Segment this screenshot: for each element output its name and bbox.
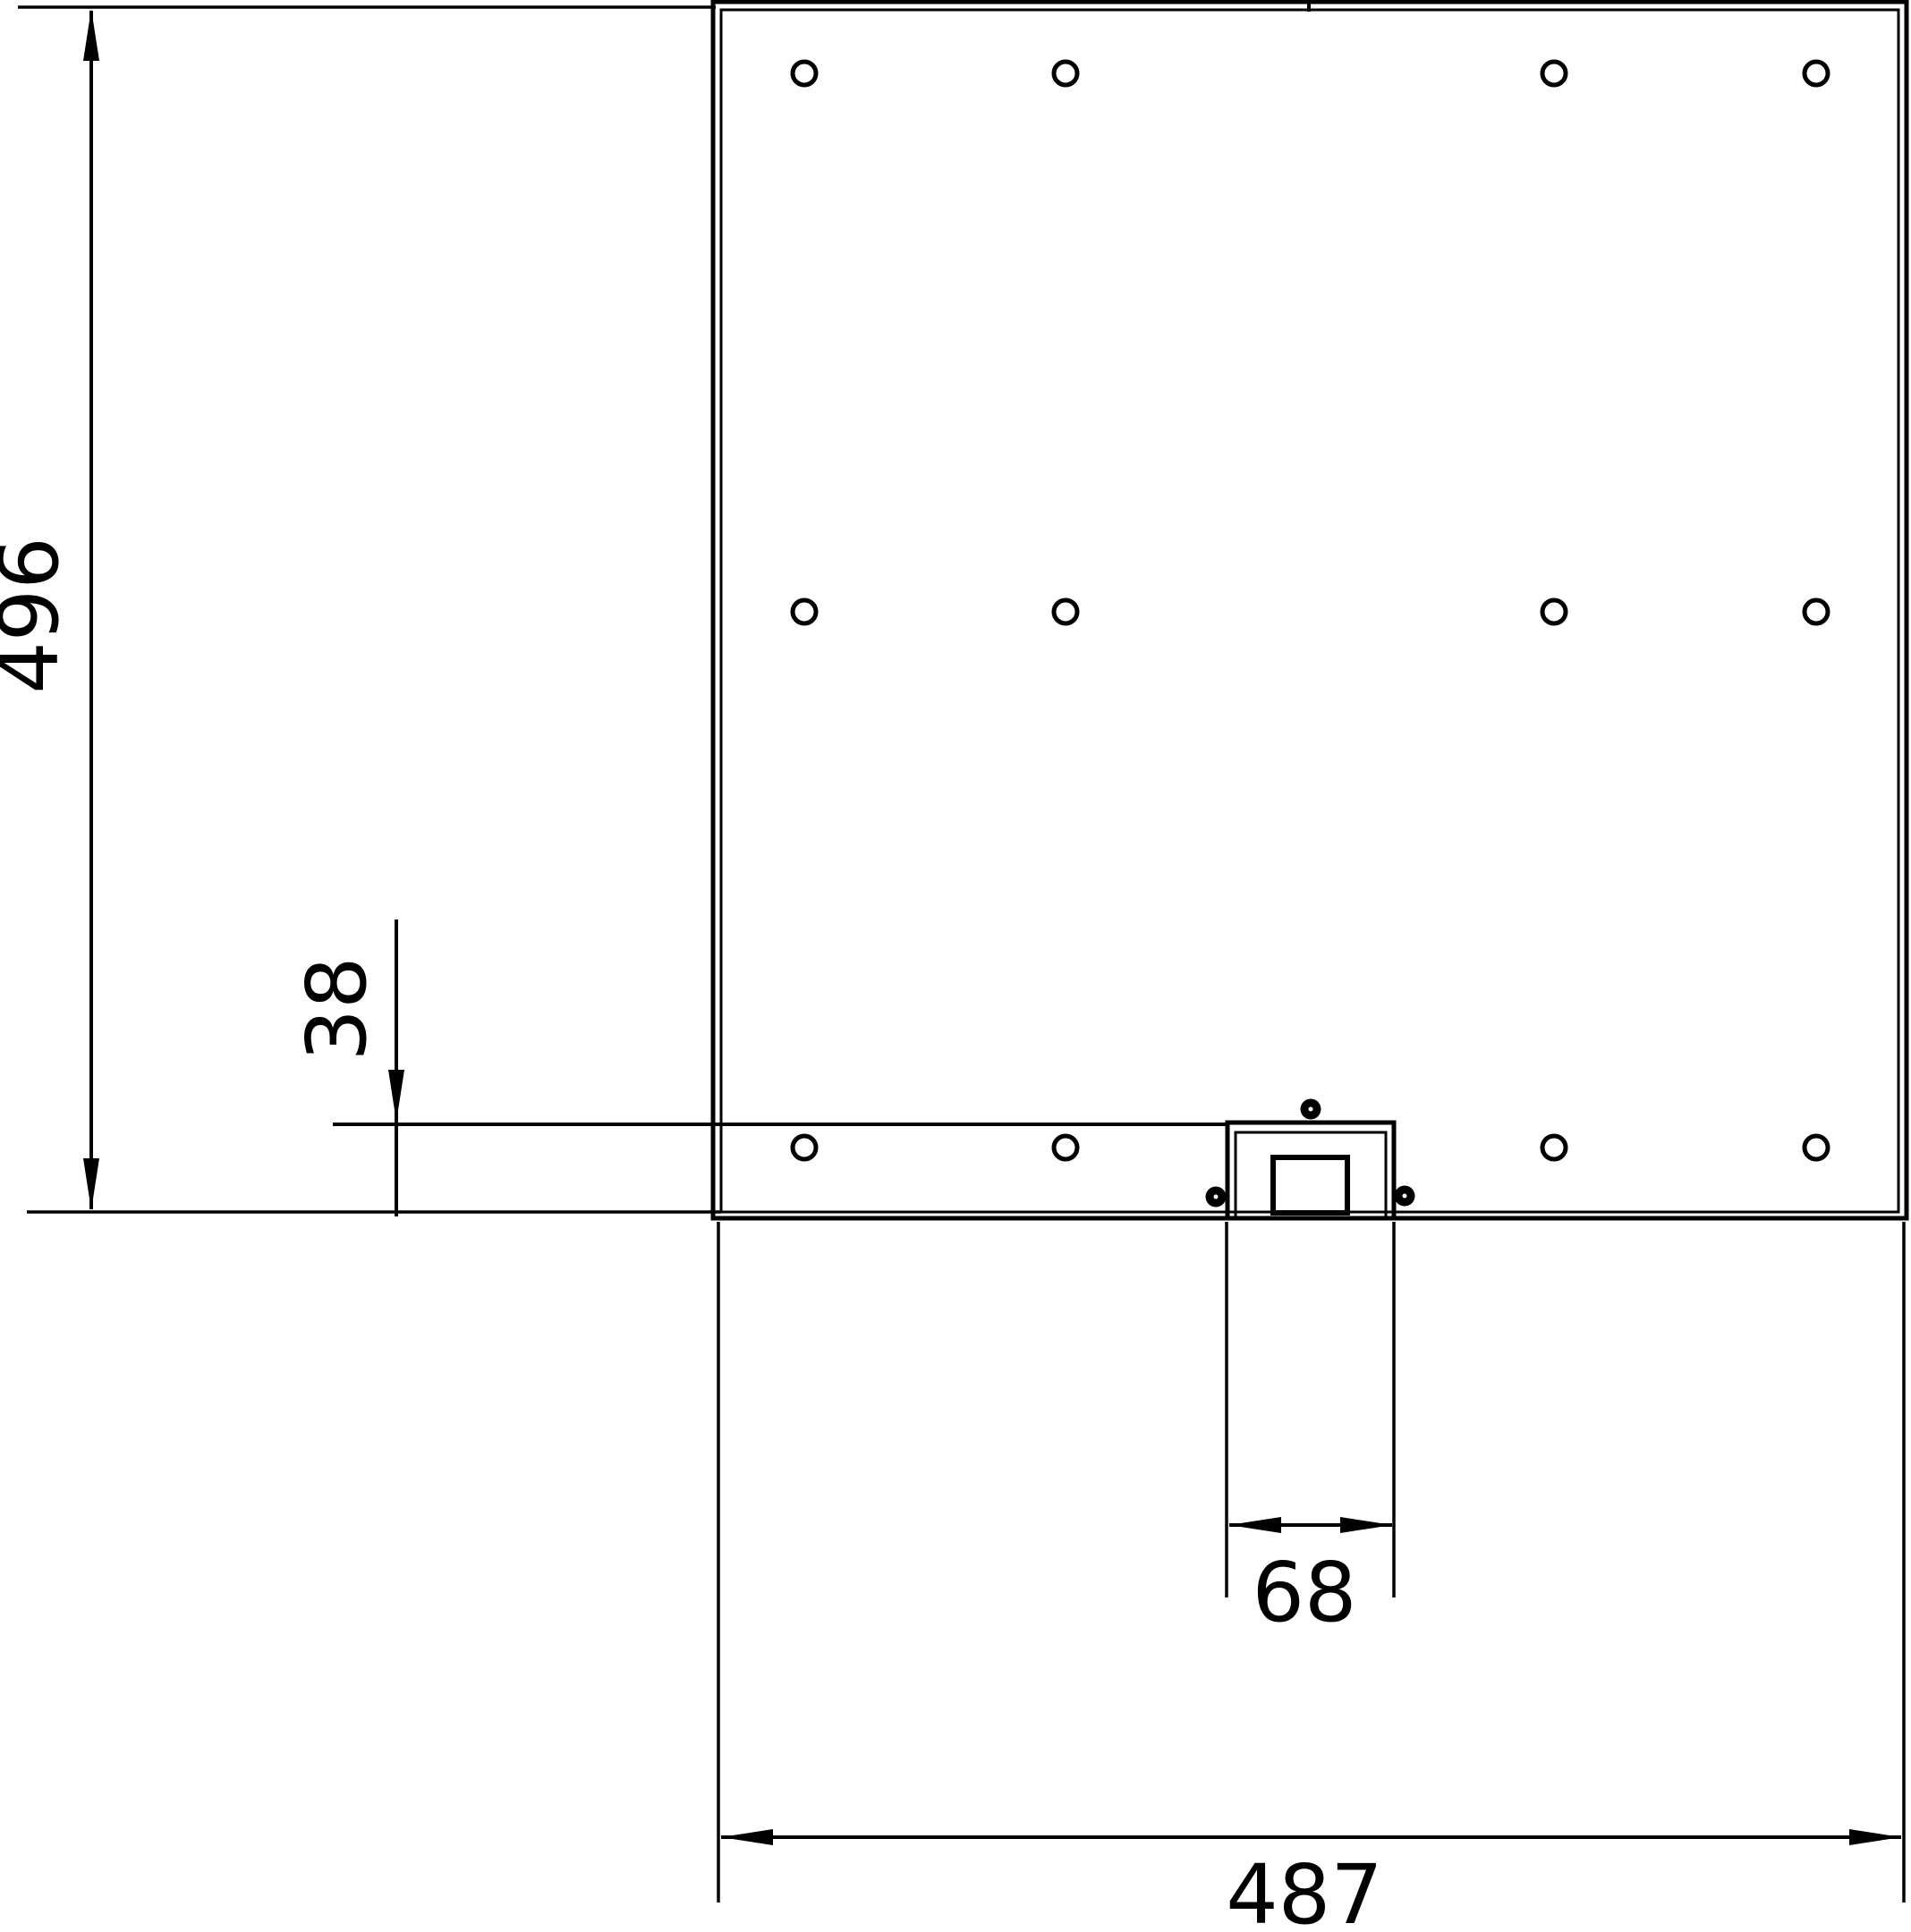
cutout-68-dimension-label: 68 (1252, 1545, 1356, 1640)
cutout-68-arrowhead (1340, 1517, 1392, 1533)
plate-inner-edge (721, 10, 1898, 1212)
drawing-svg: 4963868487 (0, 0, 1911, 1932)
screw-dot-center (1309, 1107, 1313, 1112)
mounting-hole (1542, 62, 1566, 85)
cutout-68-arrowhead (1229, 1517, 1281, 1533)
plate-outer-edge (713, 2, 1907, 1218)
mounting-hole (1805, 1136, 1828, 1159)
height-496-arrowhead (83, 1158, 99, 1210)
mounting-hole (793, 600, 816, 623)
mounting-hole (1054, 62, 1077, 85)
mounting-hole (1542, 1136, 1566, 1159)
technical-drawing-sheet: 4963868487 (0, 0, 1911, 1932)
extension-lines (18, 7, 1904, 1902)
height-496-dimension-label: 496 (0, 537, 77, 694)
mounting-hole (793, 1136, 816, 1159)
latch-box (1227, 1123, 1394, 1218)
panel-plate (713, 0, 1907, 1218)
offset-38-dimension-label: 38 (289, 956, 385, 1061)
latch-outer-frame (1227, 1123, 1394, 1218)
screw-dot-center (1214, 1195, 1219, 1199)
mounting-hole (793, 62, 816, 85)
dimension-annotations: 4963868487 (0, 9, 1901, 1932)
latch-keyhole (1273, 1157, 1347, 1213)
width-487-arrowhead (1849, 1829, 1901, 1845)
width-487-arrowhead (721, 1829, 773, 1845)
latch-mid-frame (1236, 1132, 1386, 1218)
screw-dot-center (1403, 1194, 1407, 1199)
screw-dots (1206, 1099, 1415, 1207)
offset-38-arrowhead (388, 1070, 404, 1122)
width-487-dimension-label: 487 (1226, 1847, 1383, 1932)
mounting-hole (1805, 600, 1828, 623)
mounting-hole (1805, 62, 1828, 85)
mounting-hole (1054, 1136, 1077, 1159)
mounting-hole (1054, 600, 1077, 623)
mounting-holes (793, 62, 1828, 1159)
mounting-hole (1542, 600, 1566, 623)
height-496-arrowhead (83, 9, 99, 61)
